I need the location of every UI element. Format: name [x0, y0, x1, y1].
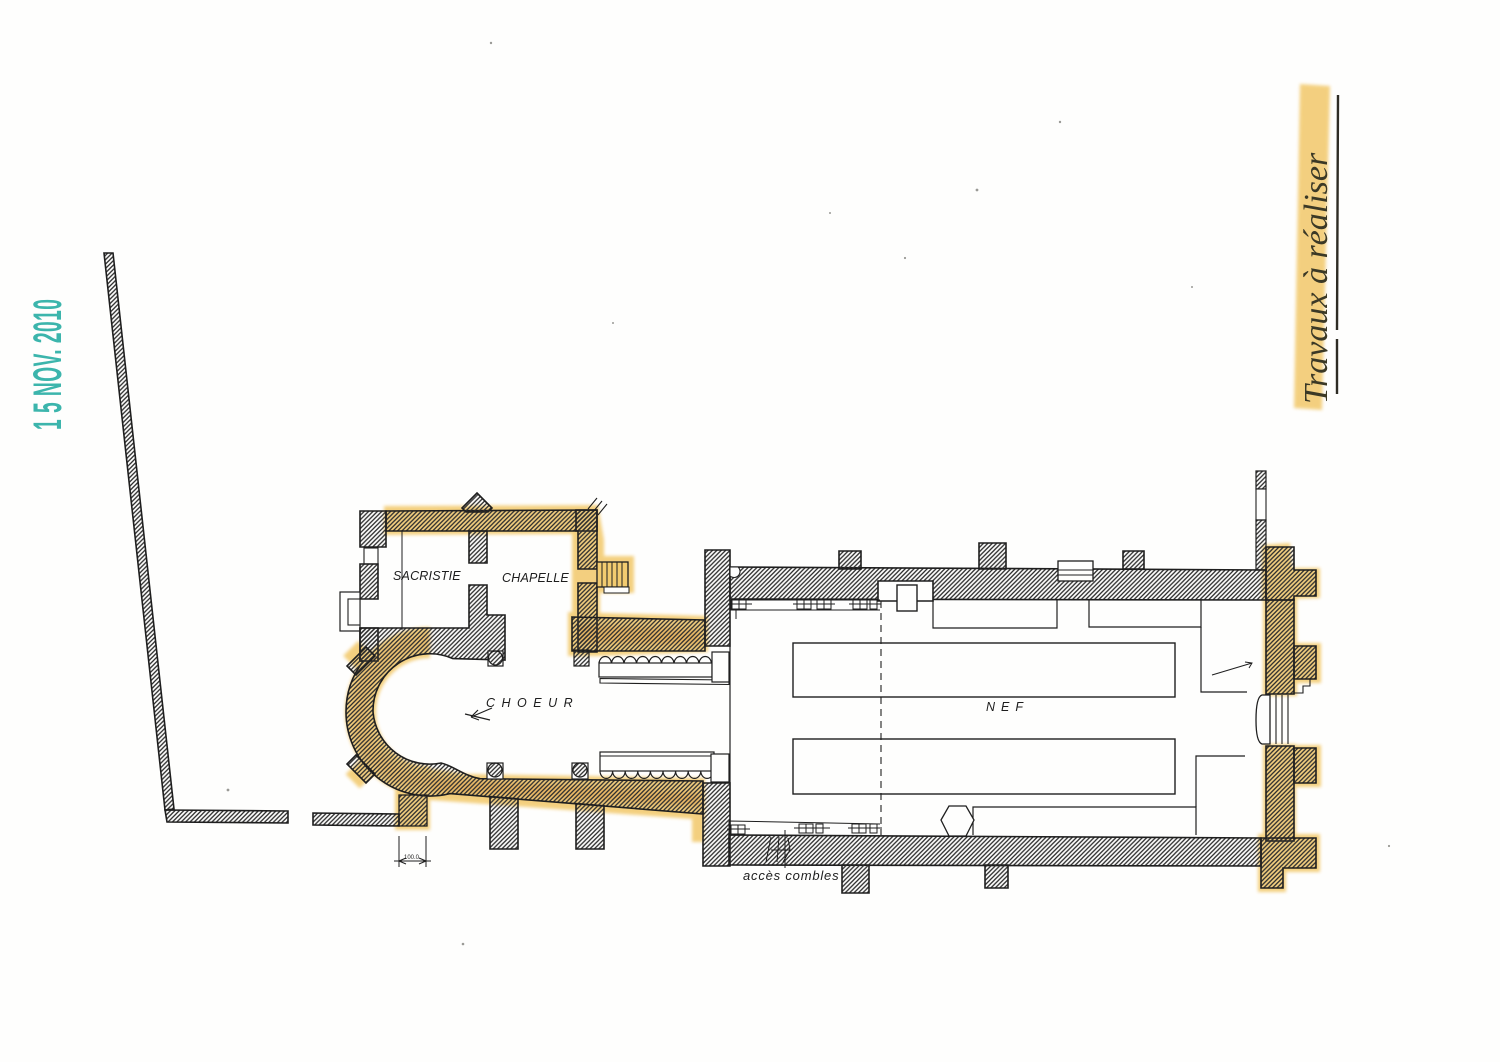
svg-text:NEF: NEF: [986, 700, 1029, 714]
svg-text:accès combles: accès combles: [743, 868, 839, 883]
svg-text:CHAPELLE: CHAPELLE: [502, 571, 569, 585]
svg-text:SACRISTIE: SACRISTIE: [393, 569, 461, 583]
svg-text:100.0: 100.0: [404, 855, 420, 861]
svg-text:CHOEUR: CHOEUR: [486, 696, 579, 710]
svg-text:1 5 NOV. 2010: 1 5 NOV. 2010: [25, 299, 70, 430]
svg-text:Travaux à réaliser: Travaux à réaliser: [1298, 152, 1335, 404]
